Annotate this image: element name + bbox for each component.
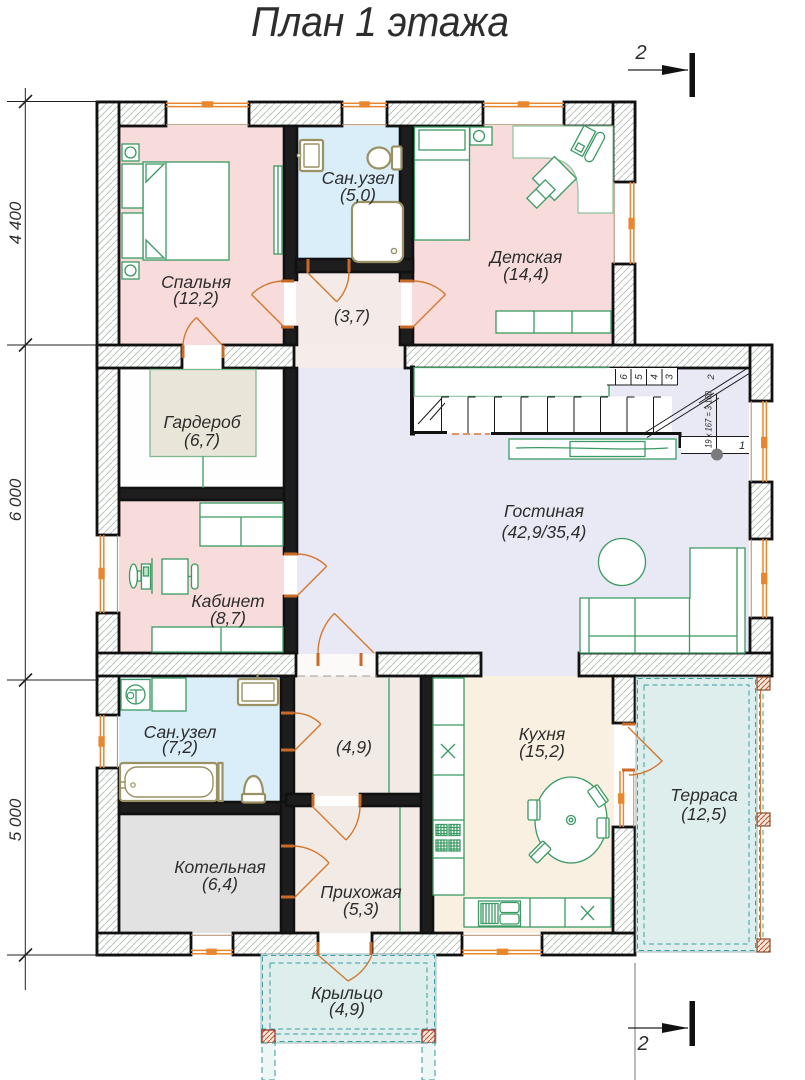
svg-text:4 400: 4 400 <box>6 201 25 244</box>
svg-text:6 000: 6 000 <box>6 478 25 521</box>
svg-text:5: 5 <box>634 374 645 380</box>
svg-text:(4,9): (4,9) <box>329 999 365 1019</box>
svg-text:(5,0): (5,0) <box>340 185 376 205</box>
svg-text:(6,4): (6,4) <box>202 874 238 894</box>
svg-text:Гостиная: Гостиная <box>504 501 584 521</box>
svg-text:(42,9/35,4): (42,9/35,4) <box>502 522 587 542</box>
svg-text:2: 2 <box>634 42 646 64</box>
svg-text:5 000: 5 000 <box>6 798 25 841</box>
svg-text:6: 6 <box>619 374 630 380</box>
svg-text:1: 1 <box>739 440 745 452</box>
svg-text:4: 4 <box>650 374 661 380</box>
svg-text:Терраса: Терраса <box>670 785 738 805</box>
svg-text:(12,2): (12,2) <box>173 288 219 308</box>
svg-text:19 x 167 = 3 180: 19 x 167 = 3 180 <box>704 391 714 448</box>
svg-text:2: 2 <box>636 1033 648 1055</box>
svg-text:2: 2 <box>706 374 717 381</box>
svg-text:(12,5): (12,5) <box>681 804 727 824</box>
svg-text:(4,9): (4,9) <box>336 737 372 757</box>
svg-text:(6,7): (6,7) <box>184 430 220 450</box>
svg-text:Гардероб: Гардероб <box>163 412 241 432</box>
svg-text:(5,3): (5,3) <box>343 899 379 919</box>
svg-text:(14,4): (14,4) <box>503 264 549 284</box>
svg-text:3: 3 <box>665 374 676 380</box>
svg-text:(15,2): (15,2) <box>519 741 565 761</box>
svg-text:(3,7): (3,7) <box>334 306 370 326</box>
svg-text:(8,7): (8,7) <box>210 608 246 628</box>
svg-text:(7,2): (7,2) <box>162 737 198 757</box>
svg-text:План 1 этажа: План 1 этажа <box>251 0 509 45</box>
